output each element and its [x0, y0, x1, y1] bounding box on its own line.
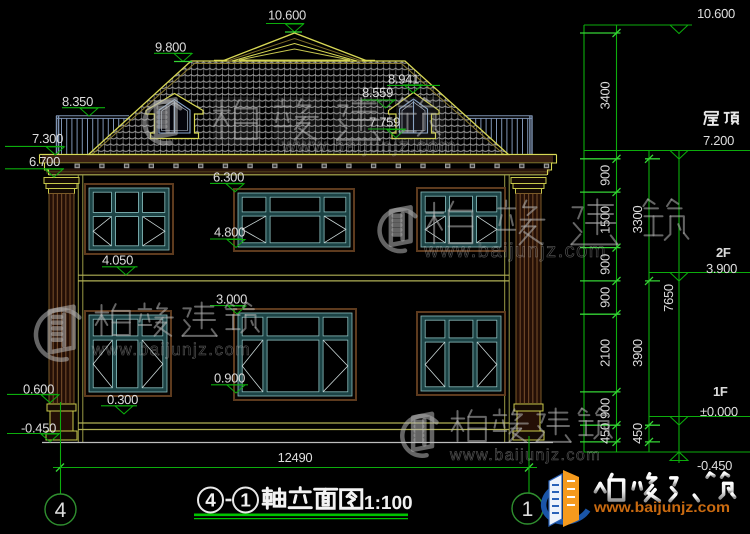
- svg-text:900: 900: [598, 287, 613, 308]
- svg-text:7650: 7650: [661, 284, 676, 312]
- svg-text:1: 1: [240, 491, 251, 512]
- svg-text:4.050: 4.050: [102, 253, 133, 268]
- svg-text:3300: 3300: [630, 206, 645, 234]
- svg-text:10.600: 10.600: [268, 8, 306, 23]
- svg-text:12490: 12490: [278, 450, 313, 465]
- svg-text:4: 4: [205, 491, 216, 512]
- svg-text:0.900: 0.900: [214, 371, 245, 386]
- svg-text:-0.450: -0.450: [21, 421, 56, 436]
- svg-text:2100: 2100: [598, 339, 613, 367]
- svg-text:6.700: 6.700: [29, 154, 60, 169]
- svg-text:7.200: 7.200: [703, 133, 734, 148]
- svg-text:2F: 2F: [716, 245, 731, 260]
- svg-text:www.baijunjz.com: www.baijunjz.com: [281, 136, 457, 157]
- svg-text:±0.000: ±0.000: [700, 404, 738, 419]
- svg-text:900: 900: [598, 165, 613, 186]
- svg-text:1:100: 1:100: [364, 493, 413, 514]
- svg-text:www.baijunjz.com: www.baijunjz.com: [423, 240, 607, 262]
- svg-text:7.300: 7.300: [32, 131, 63, 146]
- svg-text:3.900: 3.900: [706, 261, 737, 276]
- svg-text:www.baijunjz.com: www.baijunjz.com: [449, 447, 601, 464]
- svg-text:0.600: 0.600: [23, 382, 54, 397]
- svg-text:6.300: 6.300: [213, 170, 244, 185]
- svg-text:0.300: 0.300: [107, 392, 138, 407]
- svg-text:8.350: 8.350: [62, 94, 93, 109]
- svg-text:4.800: 4.800: [214, 225, 245, 240]
- svg-text:-0.450: -0.450: [697, 458, 732, 473]
- svg-text:10.600: 10.600: [697, 6, 735, 21]
- svg-text:1: 1: [522, 498, 534, 521]
- svg-text:4: 4: [55, 499, 67, 522]
- svg-text:450: 450: [630, 423, 645, 444]
- svg-text:1F: 1F: [713, 384, 728, 399]
- svg-text:3400: 3400: [598, 82, 613, 110]
- svg-text:1500: 1500: [598, 206, 613, 234]
- svg-text:www.baijunjz.com: www.baijunjz.com: [91, 340, 251, 359]
- svg-text:9.800: 9.800: [155, 40, 186, 55]
- svg-text:3900: 3900: [630, 339, 645, 367]
- svg-text:www.baijunjz.com: www.baijunjz.com: [593, 500, 730, 516]
